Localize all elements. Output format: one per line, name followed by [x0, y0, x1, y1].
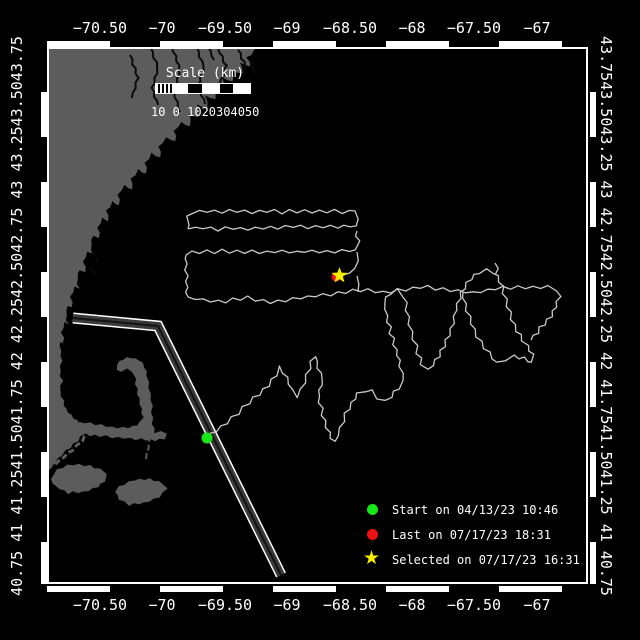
selected-star-icon: ★ — [363, 549, 380, 568]
shipping-lane — [73, 318, 281, 575]
scalebar-hatch-segment — [156, 84, 172, 93]
axis-latitude-left: 40.75 41 41.2541.5041.75 42 42.2542.5042… — [8, 36, 26, 596]
scalebar-segment — [234, 84, 250, 93]
start-position-marker[interactable] — [202, 433, 213, 444]
lon-tick-label: −67 — [523, 596, 550, 614]
scalebar-segment — [219, 84, 235, 93]
glider-track[interactable] — [187, 209, 358, 231]
last-legend-icon — [367, 529, 378, 540]
scalebar-numbers: 10 0 1020304050 — [151, 105, 259, 119]
lon-tick-label: −70.50 — [73, 19, 127, 37]
border-zebra-bottom — [47, 586, 590, 592]
lon-tick-label: −67 — [523, 19, 550, 37]
lon-tick-label: −70 — [148, 596, 175, 614]
land-mass — [79, 357, 167, 441]
legend-label: Start on 04/13/23 10:46 — [392, 503, 558, 517]
start-legend-icon — [367, 504, 378, 515]
lon-tick-label: −69.50 — [198, 19, 252, 37]
glider-track[interactable] — [357, 276, 359, 292]
lon-tick-label: −68 — [398, 596, 425, 614]
lon-tick-label: −68.50 — [323, 19, 377, 37]
lon-tick-label: −69.50 — [198, 596, 252, 614]
scalebar-title: Scale (km) — [166, 66, 244, 81]
map-canvas[interactable] — [0, 0, 640, 640]
scalebar-segment — [172, 84, 188, 93]
land-mass — [51, 464, 107, 495]
lon-tick-label: −69 — [273, 19, 300, 37]
lon-tick-label: −68 — [398, 19, 425, 37]
legend-label: Selected on 07/17/23 16:31 — [392, 553, 580, 567]
border-zebra-top — [47, 41, 590, 47]
scalebar — [155, 83, 251, 94]
glider-track[interactable] — [185, 231, 360, 297]
glider-track[interactable] — [495, 263, 498, 275]
glider-track[interactable] — [343, 252, 358, 275]
terrain-streak — [250, 60, 256, 74]
legend-label: Last on 07/17/23 18:31 — [392, 528, 551, 542]
axis-latitude-right: 43.7543.5043.25 43 42.7542.5042.25 42 41… — [597, 36, 615, 596]
land-mass — [115, 478, 168, 506]
lon-tick-label: −70 — [148, 19, 175, 37]
scalebar-segment — [187, 84, 203, 93]
border-zebra-left — [41, 47, 47, 584]
map-window: −70.50−70−69.50−69−68.50−68−67.50−67 −70… — [0, 0, 640, 640]
glider-track[interactable] — [188, 285, 561, 340]
terrain-streak — [90, 266, 96, 274]
lon-tick-label: −69 — [273, 596, 300, 614]
lon-tick-label: −70.50 — [73, 596, 127, 614]
lon-tick-label: −67.50 — [447, 596, 501, 614]
lon-tick-label: −68.50 — [323, 596, 377, 614]
lon-tick-label: −67.50 — [447, 19, 501, 37]
border-zebra-right — [590, 47, 596, 584]
terrain-streak — [92, 252, 98, 262]
scalebar-segment — [203, 84, 219, 93]
glider-track[interactable] — [207, 269, 534, 442]
